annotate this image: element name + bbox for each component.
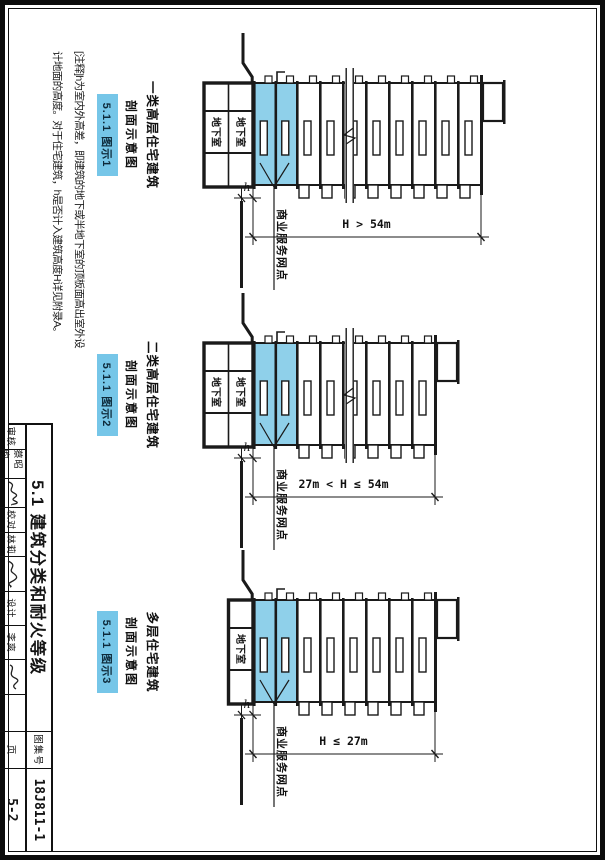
empty-cell (0, 695, 25, 731)
caption-diagram-2: 二类高层住宅建筑 剖面示意图 5.1.1 图示2 (97, 305, 163, 485)
basement-label: 地下室 (234, 377, 247, 407)
signature-scribble (0, 557, 25, 591)
figure-badge: 5.1.1 图示2 (97, 354, 118, 437)
credit-role: 设计 (0, 592, 25, 626)
title-block-row-bottom: 审核 蔡昭昀 校对 林莉 设计 李爽 页 5-2 (0, 425, 25, 851)
height-dimension-label: H ≤ 27m (319, 734, 368, 748)
atlas-number-label: 图集号 (27, 731, 51, 768)
caption-building-class: 多层住宅建筑 (144, 562, 163, 742)
commercial-outlet-label: 商业服务网点 (275, 209, 289, 281)
caption-diagram-1: 一类高层住宅建筑 剖面示意图 5.1.1 图示1 (97, 45, 163, 225)
building-section-3: 地下室hH ≤ 27m商业服务网点 (229, 550, 460, 807)
footnote: [注释]h为室内外高差，即建筑的地下或半地下室的顶板面高出室外设 计地面的高度。… (46, 51, 90, 381)
page-label: 页 (0, 731, 25, 768)
rotated-sheet: 地下室地下室hH > 54m商业服务网点地下室地下室h27m < H ≤ 54m… (0, 0, 605, 860)
signature-scribble (0, 479, 25, 508)
caption-building-class: 一类高层住宅建筑 (144, 45, 163, 225)
basement-label: 地下室 (234, 634, 247, 664)
h-dimension-label: h (243, 181, 250, 194)
caption-section-type: 剖面示意图 (123, 305, 140, 485)
sheet-title: 5.1 建筑分类和耐火等级 (27, 425, 51, 731)
credit-name: 蔡昭昀 (0, 450, 25, 479)
credit-role: 审核 (0, 425, 25, 450)
h-dimension-label: h (243, 698, 250, 711)
footnote-line1: [注释]h为室内外高差，即建筑的地下或半地下室的顶板面高出室外设 (68, 51, 90, 381)
basement-label: 地下室 (210, 377, 223, 407)
atlas-number: 18J811-1 (27, 768, 51, 850)
basement-label: 地下室 (210, 117, 223, 147)
credit-name: 李爽 (0, 626, 25, 660)
caption-section-type: 剖面示意图 (123, 45, 140, 225)
commercial-outlet-label: 商业服务网点 (275, 726, 289, 798)
h-dimension-label: h (243, 441, 250, 454)
caption-building-class: 二类高层住宅建筑 (144, 305, 163, 485)
title-block: 5.1 建筑分类和耐火等级 图集号 18J811-1 审核 蔡昭昀 校对 林莉 … (10, 423, 54, 851)
height-dimension-label: H > 54m (342, 217, 391, 231)
credit-role: 校对 (0, 508, 25, 533)
title-block-row-top: 5.1 建筑分类和耐火等级 图集号 18J811-1 (25, 425, 51, 851)
figure-badge: 5.1.1 图示3 (97, 611, 118, 694)
section-drawings: 地下室地下室hH > 54m商业服务网点地下室地下室h27m < H ≤ 54m… (5, 5, 600, 855)
credit-name: 林莉 (0, 533, 25, 558)
building-section-2: 地下室地下室h27m < H ≤ 54m商业服务网点 (204, 293, 460, 550)
drawing-sheet: 地下室地下室hH > 54m商业服务网点地下室地下室h27m < H ≤ 54m… (0, 0, 605, 860)
figure-badge: 5.1.1 图示1 (97, 94, 118, 177)
commercial-outlet-label: 商业服务网点 (275, 469, 289, 541)
basement-label: 地下室 (234, 117, 247, 147)
signature-scribble (0, 660, 25, 694)
page-number: 5-2 (0, 768, 25, 850)
building-section-1: 地下室地下室hH > 54m商业服务网点 (204, 33, 506, 290)
height-dimension-label: 27m < H ≤ 54m (298, 477, 388, 491)
caption-section-type: 剖面示意图 (123, 562, 140, 742)
caption-diagram-3: 多层住宅建筑 剖面示意图 5.1.1 图示3 (97, 562, 163, 742)
footnote-line2: 计地面的高度。对于住宅建筑，h是否计入建筑高度H详见附录A。 (46, 51, 68, 381)
